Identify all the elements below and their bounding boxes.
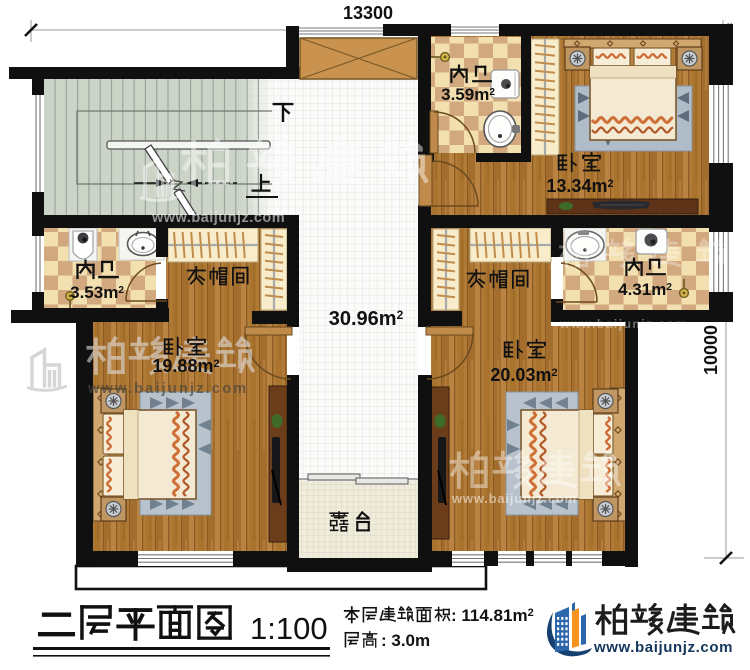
svg-text:1:100: 1:100 <box>250 611 328 646</box>
svg-text:10000: 10000 <box>701 325 721 375</box>
svg-text:www.baijunjz.com: www.baijunjz.com <box>451 491 577 506</box>
svg-text:www.baijunjz.com: www.baijunjz.com <box>87 381 248 397</box>
svg-text:19.88m2: 19.88m2 <box>152 356 219 376</box>
svg-text:13300: 13300 <box>343 3 393 23</box>
svg-text:www.baijunjz.com: www.baijunjz.com <box>151 210 285 226</box>
svg-text:20.03m2: 20.03m2 <box>490 365 557 385</box>
svg-text:www.baijunjz.com: www.baijunjz.com <box>559 317 688 331</box>
svg-text:30.96m2: 30.96m2 <box>329 308 404 330</box>
svg-text:www.baijunjz.com: www.baijunjz.com <box>593 639 733 656</box>
svg-text:: 3.0m: : 3.0m <box>381 631 430 650</box>
svg-text:4.31m2: 4.31m2 <box>618 280 672 299</box>
svg-text:3.59m2: 3.59m2 <box>441 85 495 104</box>
svg-text:: 114.81m2: : 114.81m2 <box>451 606 534 625</box>
svg-text:13.34m2: 13.34m2 <box>546 176 613 196</box>
svg-text:3.53m2: 3.53m2 <box>70 283 124 302</box>
